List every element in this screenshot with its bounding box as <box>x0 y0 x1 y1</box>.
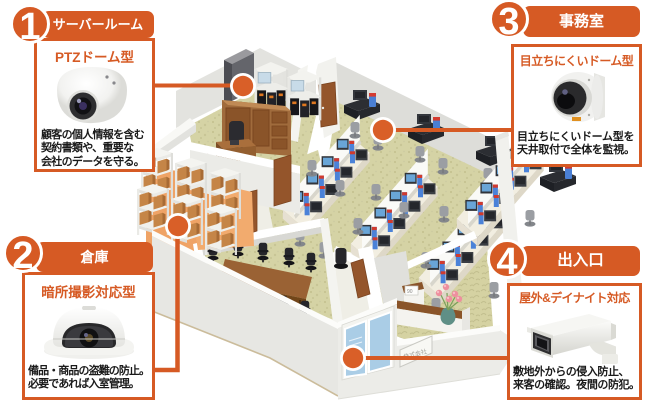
svg-text:90: 90 <box>407 289 413 295</box>
